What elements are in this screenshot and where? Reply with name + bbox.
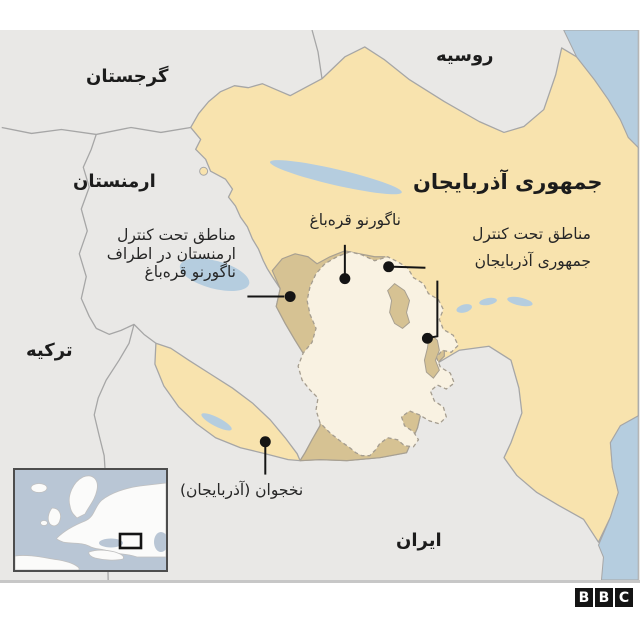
- karabakh-dot: [339, 273, 350, 284]
- inset-map: [15, 470, 166, 570]
- inset-iceland: [31, 484, 47, 493]
- bbc-logo-letter-2: B: [595, 588, 613, 607]
- callout-armenian-control: مناطق تحت کنترل ارمنستان در اطراف ناگورن…: [56, 226, 236, 282]
- label-armenia: ارمنستان: [73, 171, 156, 193]
- europe-locator-inset: [13, 468, 168, 572]
- callout-azerbaijan-control-line2: جمهوری آذربایجان: [426, 248, 591, 275]
- label-iran: ایران: [396, 530, 442, 552]
- az-control-dot-2: [422, 333, 433, 344]
- callout-armenian-control-line3: ناگورنو قره‌باغ: [56, 263, 236, 282]
- callout-armenian-control-line2: ارمنستان در اطراف: [56, 245, 236, 264]
- label-russia: روسیه: [436, 45, 494, 67]
- inset-british-isles: [48, 508, 60, 526]
- bbc-logo-letter-3: C: [615, 588, 633, 607]
- inset-ireland: [41, 521, 48, 526]
- callout-armenian-control-line1: مناطق تحت کنترل: [56, 226, 236, 245]
- bbc-logo: B B C: [575, 588, 633, 607]
- callout-nagorno-karabakh: ناگورنو قره‌باغ: [283, 211, 401, 230]
- az-control-leader-line-1: [394, 267, 426, 268]
- callout-azerbaijan-control: مناطق تحت کنترل جمهوری آذربایجان: [426, 221, 591, 275]
- bbc-map-graphic: روسیه گرجستان ارمنستان جمهوری آذربایجان …: [0, 0, 640, 640]
- am-control-dot: [285, 291, 296, 302]
- bbc-logo-letter-1: B: [575, 588, 593, 607]
- azerbaijan-exclave: [200, 167, 208, 175]
- nakhchivan-dot: [260, 436, 271, 447]
- label-turkey: ترکیه: [26, 340, 73, 362]
- label-georgia: گرجستان: [86, 66, 168, 88]
- callout-nakhchivan: نخجوان (آذربایجان): [180, 481, 303, 500]
- caucasus-map: روسیه گرجستان ارمنستان جمهوری آذربایجان …: [0, 30, 640, 583]
- callout-azerbaijan-control-line1: مناطق تحت کنترل: [426, 221, 591, 248]
- az-control-dot-1: [383, 261, 394, 272]
- label-azerbaijan: جمهوری آذربایجان: [413, 170, 603, 195]
